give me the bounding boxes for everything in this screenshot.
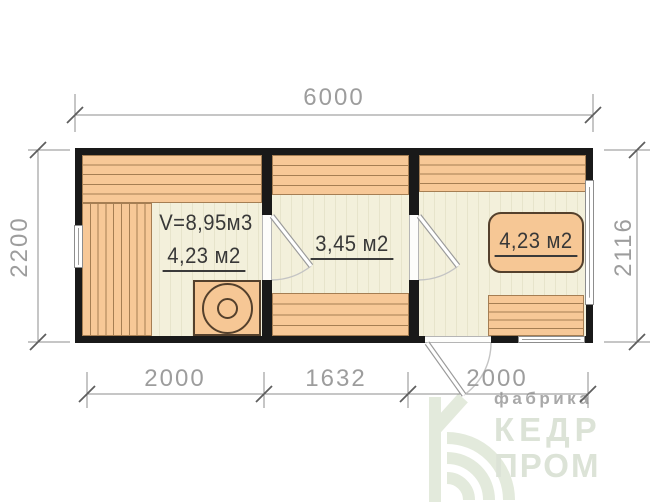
dim-right-height: 2116 bbox=[610, 177, 638, 317]
floor-plan-canvas: фабрика КЕДР ПРОМ 4,23 м2 bbox=[0, 0, 669, 502]
dim-overall-width: 6000 bbox=[234, 84, 434, 112]
sauna-volume-label: V=8,95м3 bbox=[142, 210, 271, 236]
dim-left-height: 2200 bbox=[6, 177, 34, 317]
dim-bottom-segment-1: 2000 bbox=[115, 365, 235, 393]
dim-bottom-segment-3: 2000 bbox=[437, 365, 557, 393]
dim-bottom-segment-2: 1632 bbox=[276, 365, 396, 393]
sauna-area-label-wrap: 4,23 м2 bbox=[140, 243, 269, 272]
sauna-area-label: 4,23 м2 bbox=[163, 243, 246, 272]
washroom-area-label: 3,45 м2 bbox=[311, 231, 394, 260]
washroom-area-label-wrap: 3,45 м2 bbox=[288, 231, 417, 260]
